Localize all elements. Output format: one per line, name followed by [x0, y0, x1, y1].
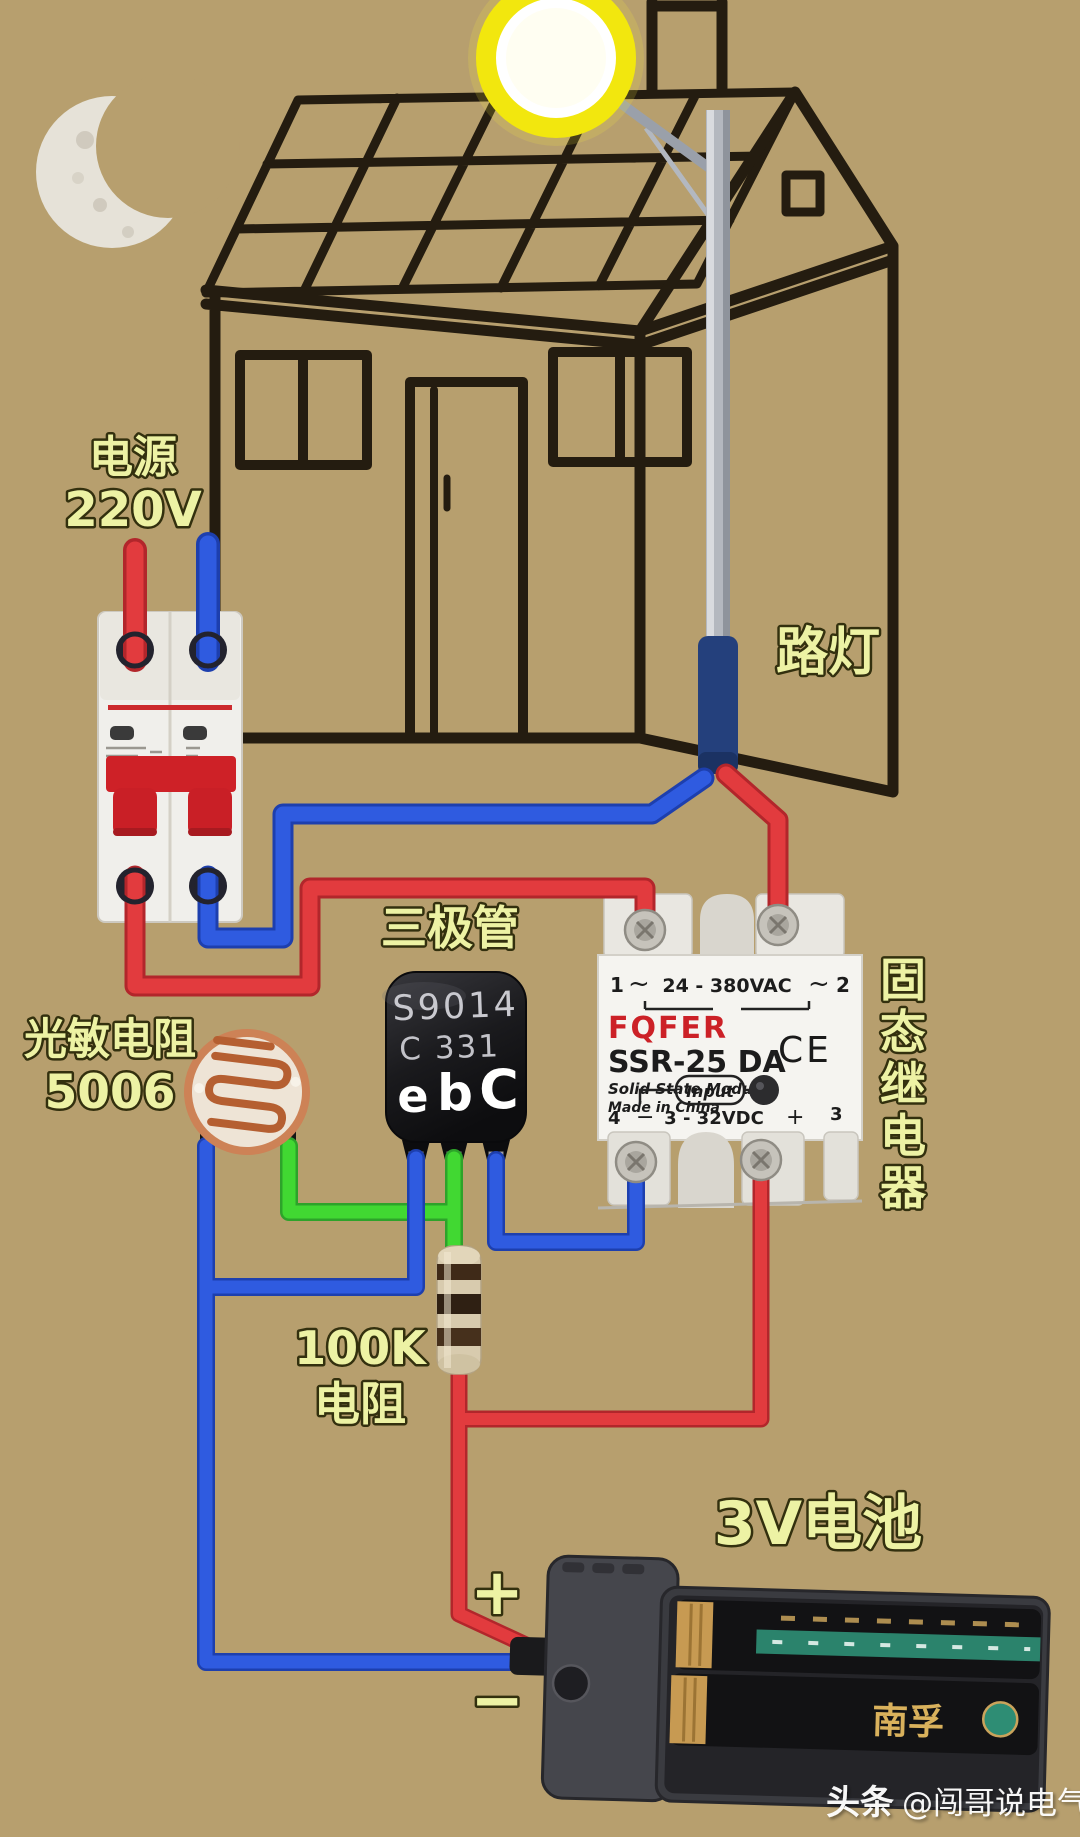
- breaker-toggle-base: [106, 756, 236, 792]
- label-photoresistor-line2: 5006: [45, 1065, 176, 1120]
- label-resistor-line2: 电阻: [314, 1377, 406, 1431]
- ssr-dc-rating: 3 - 32VDC: [664, 1108, 764, 1129]
- label-ssr-char-1: 固: [880, 953, 926, 1007]
- battery-cell-top: [676, 1599, 1042, 1679]
- wiring-diagram-stage: 1 ~ 24 - 380VAC ~ 2 FQFER SSR-25 DA CE S…: [0, 0, 1080, 1837]
- transistor-pin-e: e: [397, 1069, 428, 1123]
- watermark-prefix: 头条: [826, 1783, 894, 1823]
- ssr-ac-rating: 24 - 380VAC: [662, 975, 791, 997]
- ssr-tilde-right: ~: [808, 969, 830, 999]
- label-battery: 3V电池: [714, 1489, 922, 1559]
- label-ssr-char-4: 电: [880, 1109, 926, 1163]
- breaker-indicator-left: [110, 726, 134, 740]
- label-battery-plus: +: [470, 1556, 524, 1630]
- ssr-dc-plus: +: [786, 1105, 804, 1130]
- ssr-input-label: Input: [686, 1082, 735, 1101]
- label-power-line1: 电源: [89, 432, 177, 483]
- ssr-terminal-4-label: 4: [608, 1108, 621, 1129]
- moon-shadow: [96, 74, 240, 218]
- watermark-handle: @闯哥说电气: [902, 1786, 1080, 1822]
- ssr-terminal-2-label: 2: [836, 973, 850, 997]
- ssr-terminal-3-label: 3: [830, 1104, 843, 1125]
- breaker-indicator-right: [183, 726, 207, 740]
- battery-brand: 南孚: [872, 1701, 945, 1744]
- label-battery-minus: −: [470, 1664, 524, 1738]
- ssr-tilde-left: ~: [628, 969, 650, 999]
- transistor-part-number: S9014: [392, 985, 520, 1029]
- ssr-brand: FQFER: [608, 1011, 728, 1046]
- ssr-screw-t4: [616, 1142, 656, 1182]
- ssr-led-dot: [749, 1075, 779, 1105]
- label-ssr-char-3: 继: [880, 1057, 926, 1111]
- battery-ring-badge: [983, 1702, 1018, 1737]
- ssr-screw-t2: [758, 905, 798, 945]
- ssr-screw-t1: [625, 910, 665, 950]
- label-photoresistor-line1: 光敏电阻: [24, 1015, 196, 1065]
- transistor-pin-c: C: [479, 1058, 519, 1121]
- label-street-lamp: 路灯: [776, 623, 880, 683]
- label-ssr-char-2: 态: [880, 1005, 926, 1059]
- transistor-pin-b: b: [437, 1064, 473, 1122]
- label-resistor-line1: 100K: [294, 1321, 428, 1375]
- label-transistor: 三极管: [381, 901, 519, 955]
- ce-mark: CE: [778, 1030, 832, 1071]
- resistor-100k: [437, 1246, 481, 1374]
- label-ssr-char-5: 器: [880, 1161, 927, 1215]
- label-power-line2: 220V: [64, 482, 201, 538]
- ssr-terminal-1-label: 1: [610, 973, 624, 997]
- ssr-dc-minus: −: [636, 1105, 654, 1130]
- wiring-diagram: 1 ~ 24 - 380VAC ~ 2 FQFER SSR-25 DA CE S…: [0, 0, 1080, 1837]
- battery-holder-button: [553, 1665, 590, 1702]
- battery-cell-bottom: 南孚: [669, 1673, 1039, 1755]
- ssr-screw-t3: [741, 1140, 781, 1180]
- watermark: 头条 @闯哥说电气: [826, 1783, 1080, 1823]
